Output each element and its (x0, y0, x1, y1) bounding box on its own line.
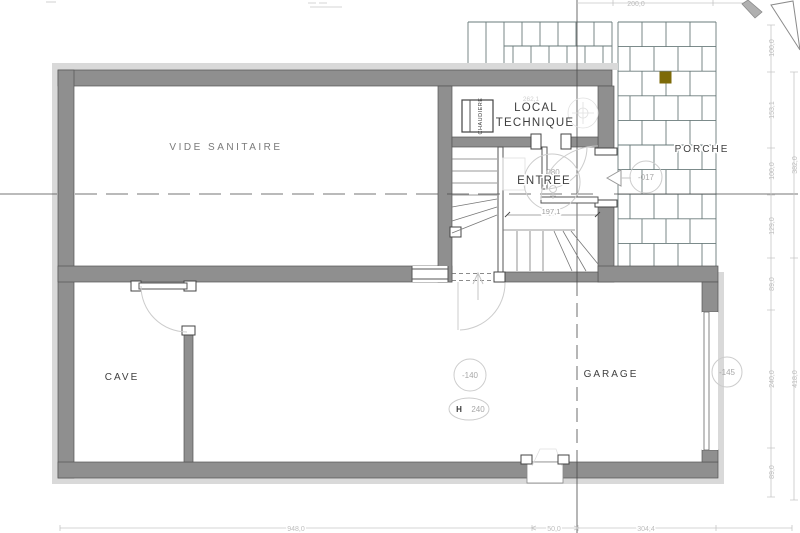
boiler: CHAUDIERE (462, 98, 493, 135)
dim-right-3: 129,0 (769, 217, 776, 235)
dim-top-width: 200,0 (627, 1, 645, 8)
dim-bottom-1: 50,0 (547, 526, 561, 533)
dim-right-2: 100,0 (769, 162, 776, 180)
stair-well-wall (498, 147, 503, 272)
vent-opening (412, 266, 448, 282)
dim-right-5: 240,0 (769, 370, 776, 388)
walls (58, 70, 718, 478)
dim-right-6: 89,0 (769, 465, 776, 479)
dim-bottom-0: 948,0 (287, 526, 305, 533)
room-label-local: LOCAL (514, 102, 558, 114)
room-label-garage: GARAGE (584, 369, 639, 380)
dim-right-1: 153,1 (769, 101, 776, 119)
partial-dimension-text (308, 3, 342, 7)
porch-tile-grid-top (468, 22, 612, 70)
garage-entry-door-swing (458, 282, 505, 330)
dim-right-outer-1: 418,0 (792, 370, 799, 388)
dim-right-outer-0: 382,0 (792, 156, 799, 174)
exterior-level: -145 (719, 368, 736, 377)
floor-plan: CHAUDIERE 080 -017 -140 H 240 -145 VIDE … (0, 0, 800, 533)
boiler-label: CHAUDIERE (478, 98, 484, 135)
cave-door-swing (141, 286, 187, 332)
room-labels: VIDE SANITAIRE LOCAL TECHNIQUE ENTREE PO… (105, 102, 730, 383)
porch-level: -017 (638, 173, 655, 182)
dim-right-4: 89,0 (769, 277, 776, 291)
cave-door-leaf (139, 283, 187, 289)
room-label-cave: CAVE (105, 372, 140, 383)
basement-level: -140 (462, 371, 479, 380)
accent-tile (660, 72, 672, 84)
dim-right-0: 100,0 (769, 39, 776, 57)
entry-door-leaf (541, 197, 598, 203)
dim-hall-width: 197,1 (542, 207, 561, 216)
room-label-entree: ENTREE (517, 175, 571, 187)
room-label-porche: PORCHE (675, 144, 730, 155)
room-label-technique: TECHNIQUE (496, 117, 575, 129)
room-label-vide-sanitaire: VIDE SANITAIRE (169, 142, 282, 153)
ceiling-height-label: H (456, 405, 462, 414)
entry-arrow (607, 170, 621, 186)
stair-direction-arrow (473, 273, 483, 300)
garage-door-leaf (704, 312, 709, 450)
ceiling-height-value: 240 (471, 405, 485, 414)
dim-bottom-2: 304,4 (637, 526, 655, 533)
dim-local-technique-width: 262,1 (523, 96, 540, 103)
